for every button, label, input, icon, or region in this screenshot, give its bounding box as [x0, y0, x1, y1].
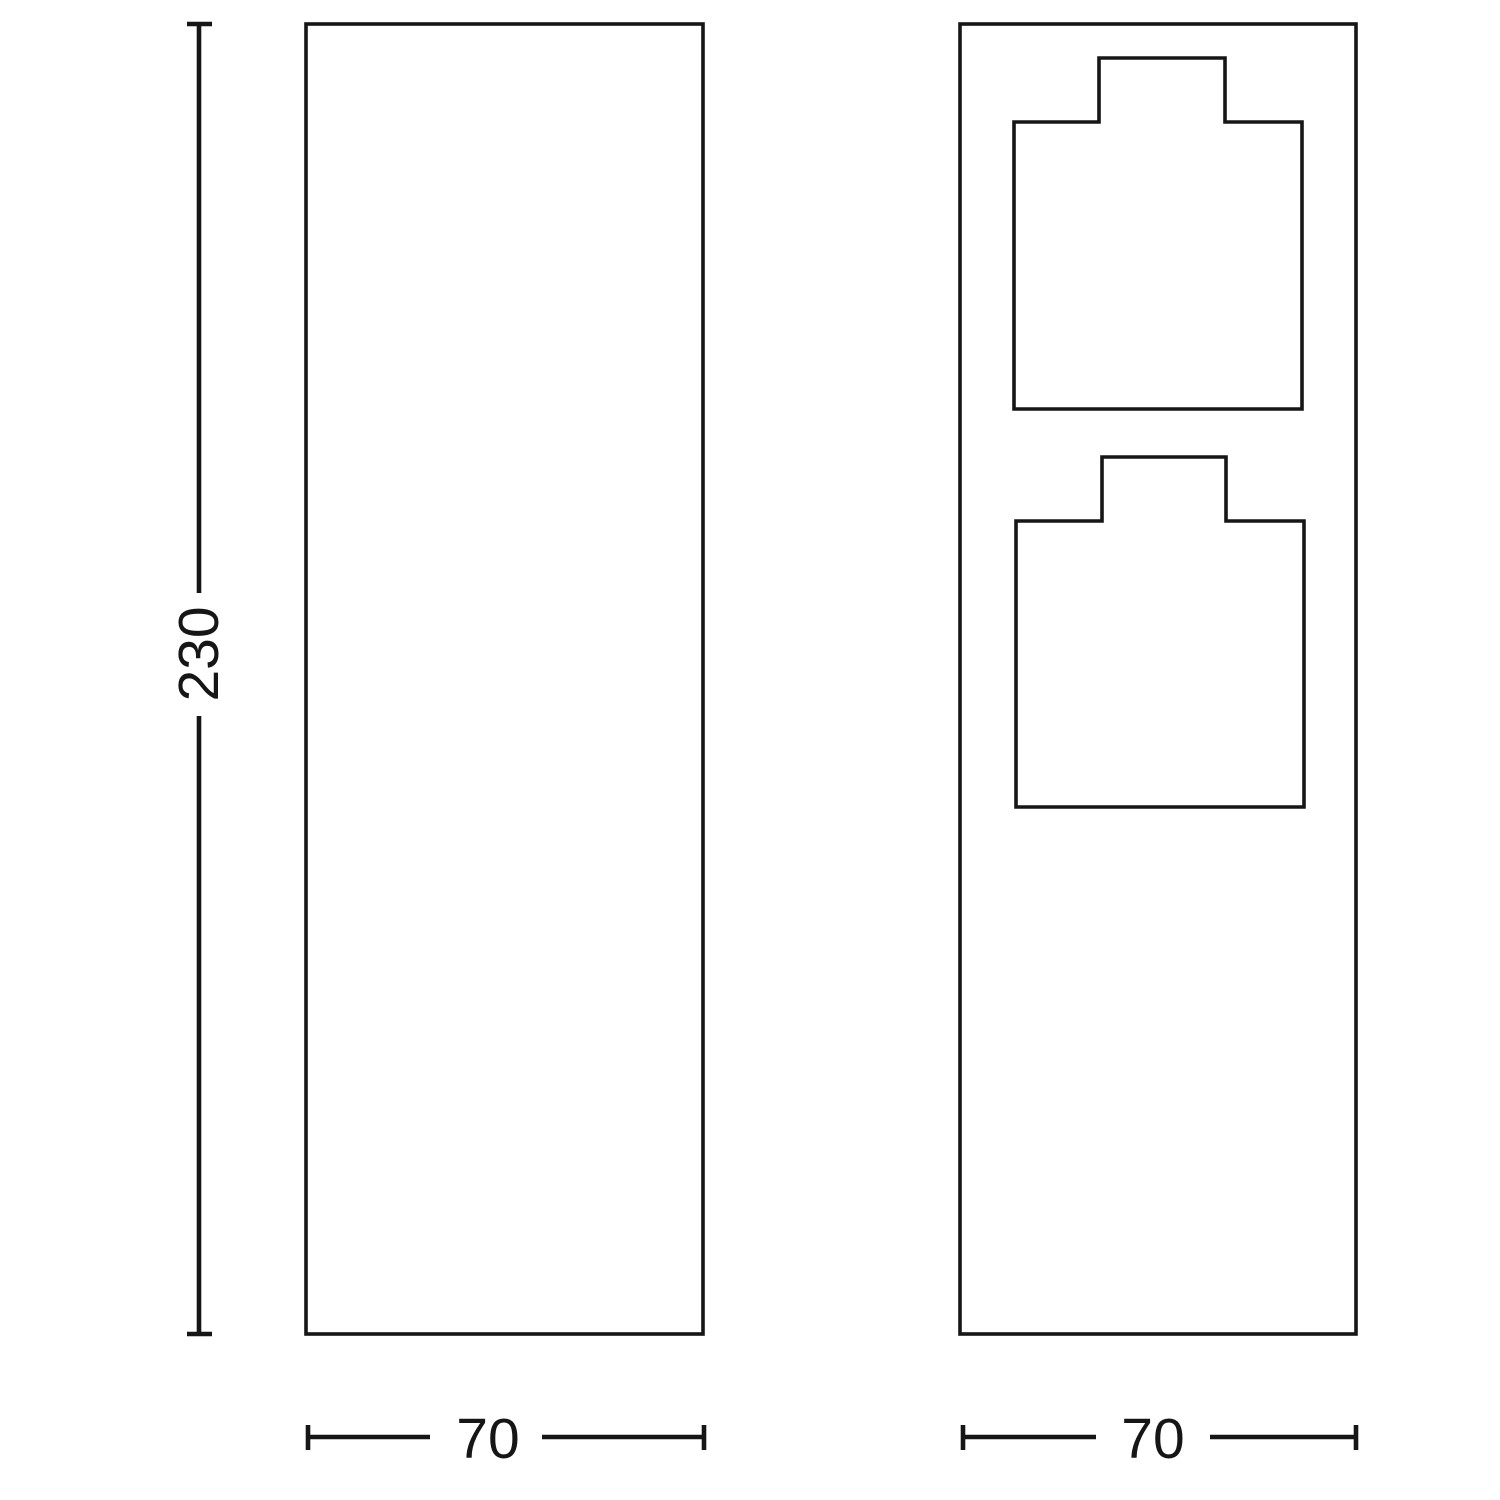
svg-text:230: 230	[167, 606, 231, 701]
svg-text:70: 70	[1121, 1407, 1184, 1471]
svg-text:70: 70	[456, 1407, 519, 1471]
